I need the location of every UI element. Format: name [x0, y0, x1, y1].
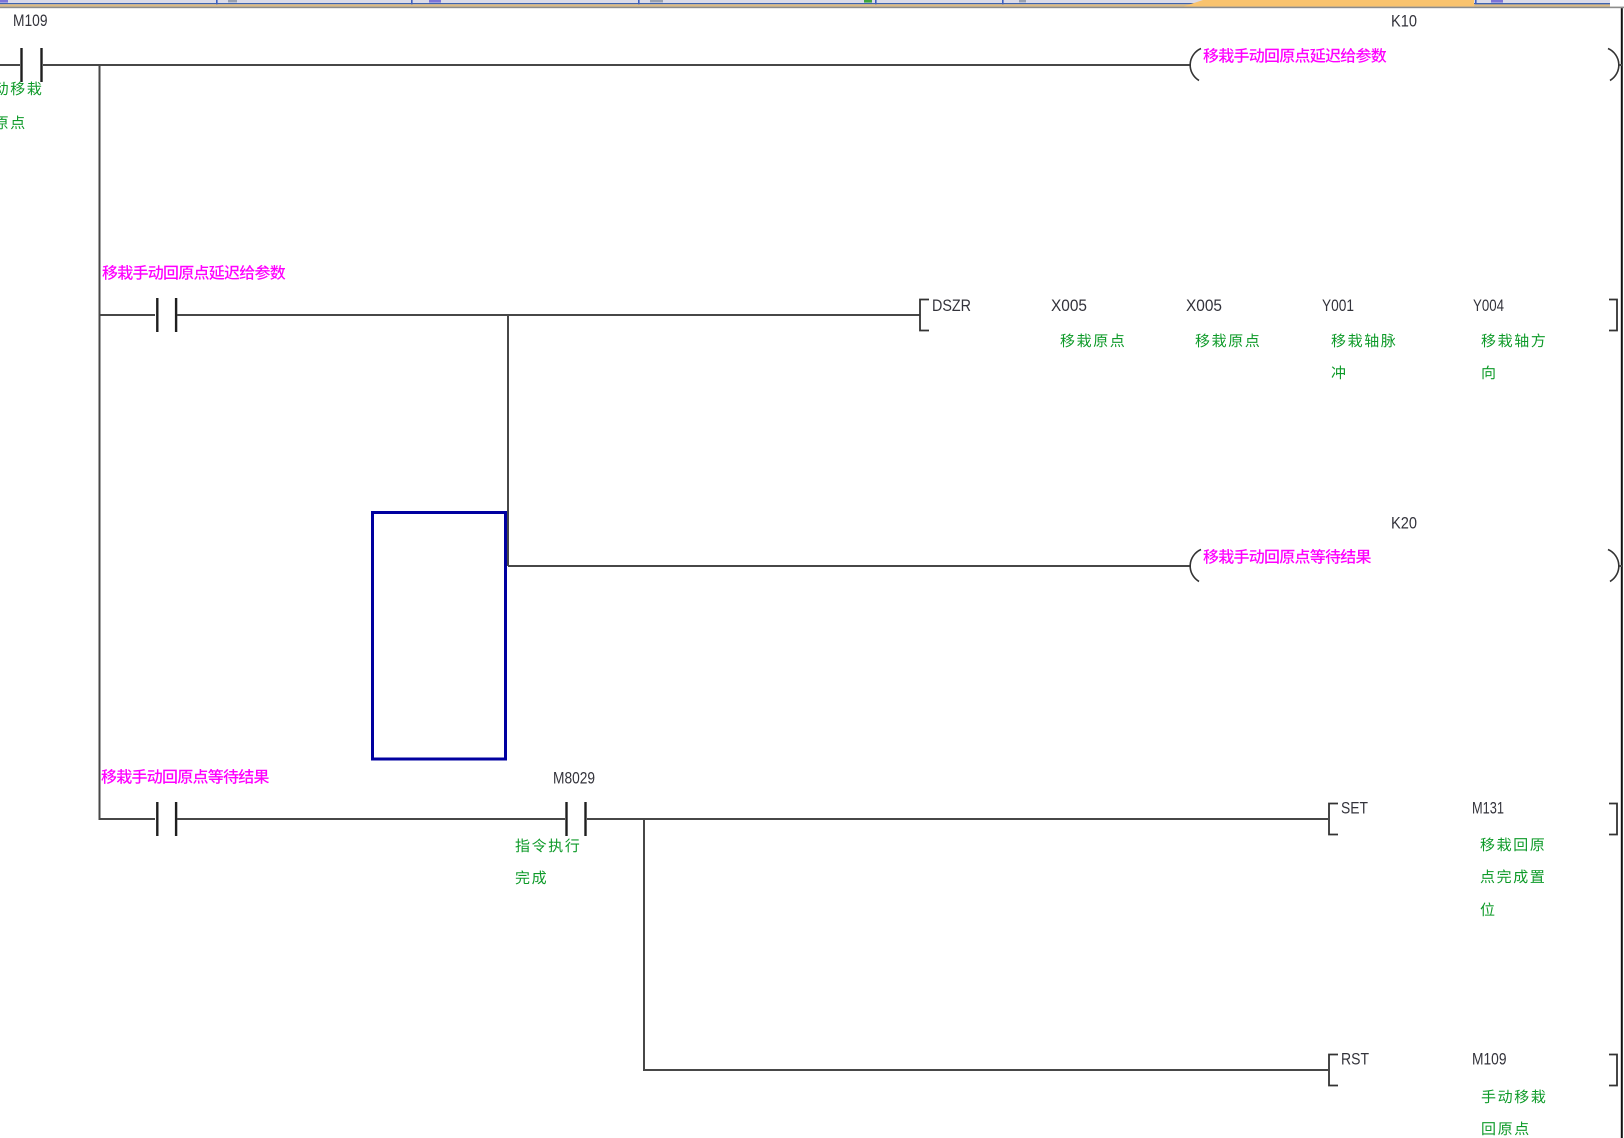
svg-text:M109: M109 [13, 11, 48, 30]
svg-text:M8029: M8029 [553, 769, 595, 788]
svg-text:SET: SET [1341, 799, 1368, 818]
svg-text:Y004: Y004 [1473, 296, 1504, 315]
svg-text:RST: RST [1341, 1050, 1369, 1069]
svg-text:X005: X005 [1051, 296, 1087, 315]
svg-text:X005: X005 [1186, 296, 1222, 315]
svg-text:K20: K20 [1391, 514, 1417, 533]
svg-text:DSZR: DSZR [932, 296, 971, 315]
svg-text:M131: M131 [1472, 799, 1504, 818]
svg-text:Y001: Y001 [1322, 296, 1354, 315]
svg-text:K10: K10 [1391, 12, 1417, 31]
svg-text:M109: M109 [1472, 1050, 1507, 1069]
